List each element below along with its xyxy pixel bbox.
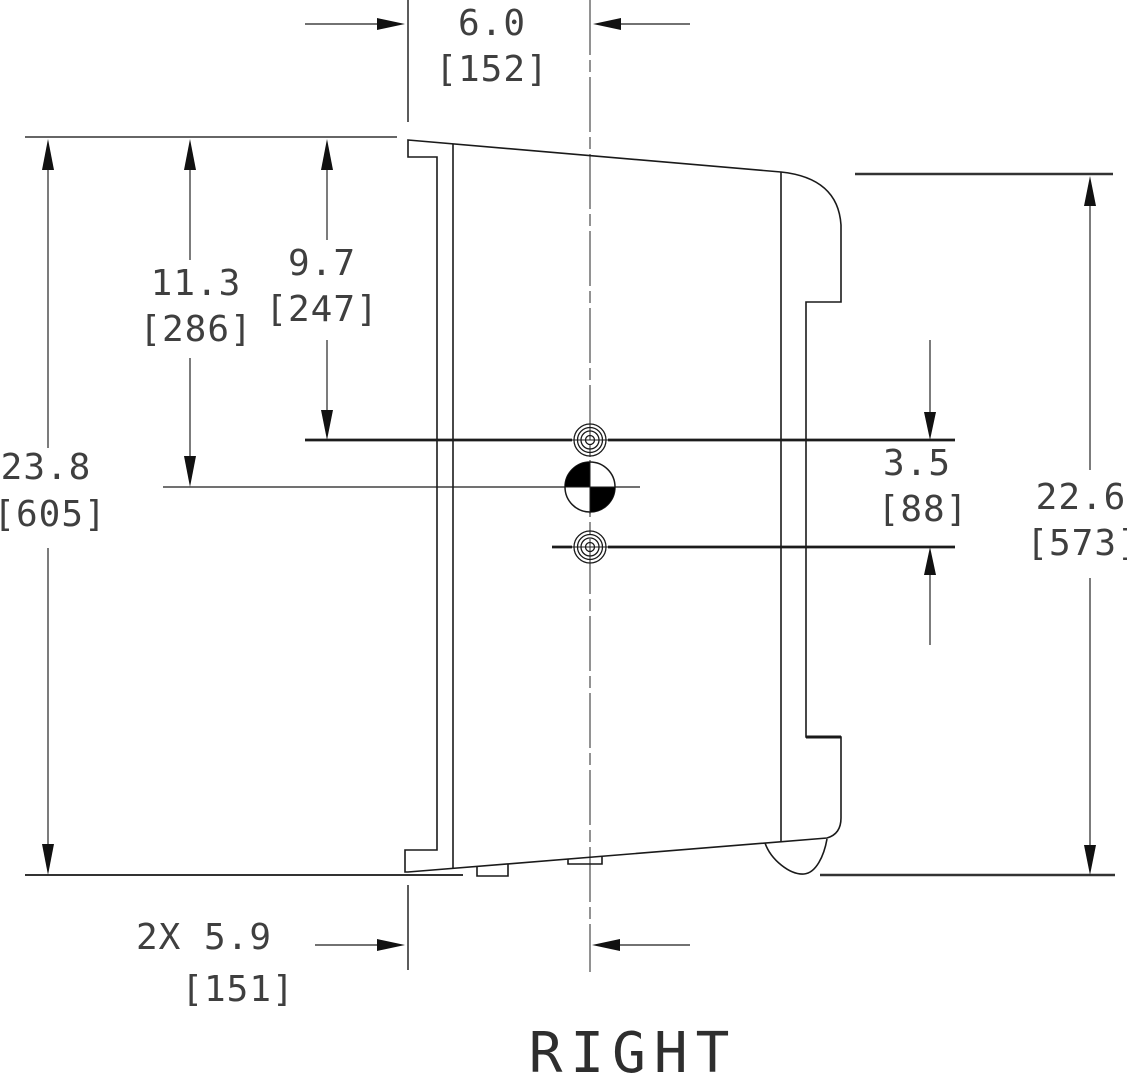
mount-hole-lines	[163, 440, 955, 547]
dim-hole-spacing-inches: 3.5	[883, 446, 951, 482]
dim-top-width-mm: [152]	[435, 52, 548, 88]
view-title: RIGHT	[529, 1026, 738, 1080]
dim-hole-spacing-mm: [88]	[878, 492, 969, 528]
rear-foot	[765, 839, 827, 874]
dim-back-height-mm: [573]	[1026, 526, 1127, 562]
dim-overall-height-inches: 23.8	[1, 450, 92, 486]
dim-hole-height-mm: [247]	[265, 292, 378, 328]
dim-cg-height-mm: [286]	[139, 312, 252, 348]
dim-bottom-width-inches: 2X 5.9	[136, 920, 272, 956]
dim-cg-height-inches: 11.3	[151, 266, 242, 302]
dim-bottom-width-arrows	[315, 939, 690, 951]
dim-overall-height-mm: [605]	[0, 497, 107, 533]
body-outline	[405, 140, 841, 876]
dim-hole-height-inches: 9.7	[288, 246, 356, 282]
engineering-drawing-right-view: 6.0 [152] 11.3 [286] 9.7 [247] 23.8 [605…	[0, 0, 1127, 1080]
dim-top-width-inches: 6.0	[458, 6, 526, 42]
dim-back-height-inches: 22.6	[1036, 480, 1127, 516]
dim-bottom-width-mm: [151]	[181, 972, 294, 1008]
center-of-gravity-icon	[560, 460, 620, 514]
